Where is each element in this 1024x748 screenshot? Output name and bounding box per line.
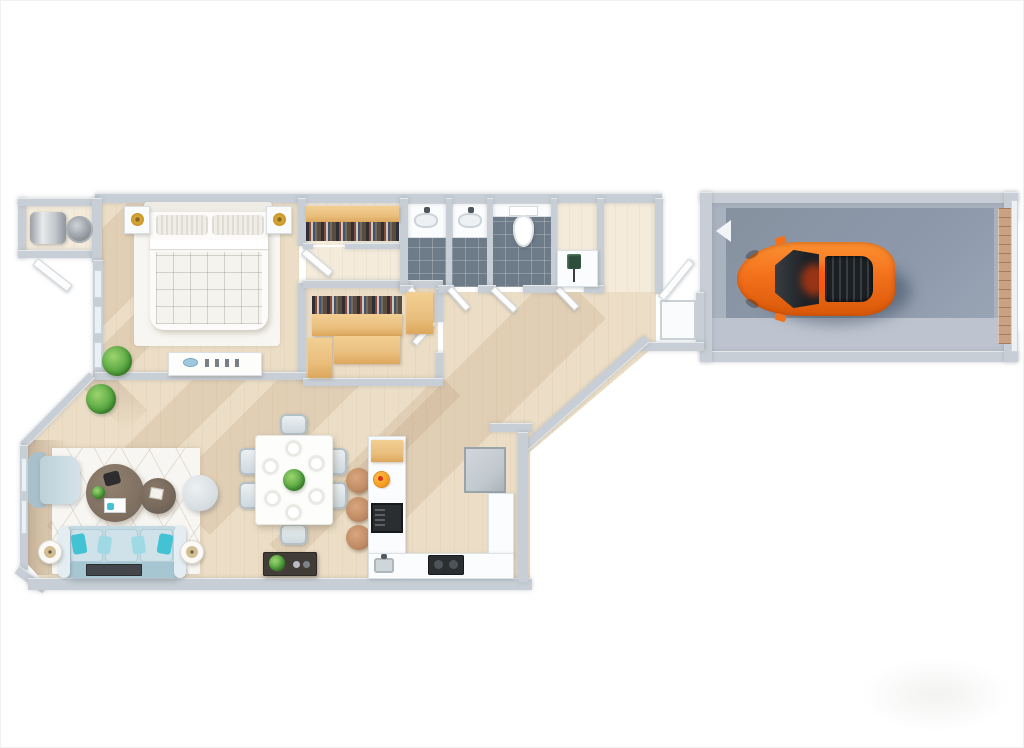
side-table-right xyxy=(180,540,204,564)
bath-divider-2 xyxy=(487,198,493,292)
place-setting xyxy=(265,491,280,506)
island-cutting-board xyxy=(371,440,403,462)
kitchen-faucet-icon xyxy=(381,554,387,559)
place-setting xyxy=(309,489,324,504)
foyer-wall-right xyxy=(655,198,663,294)
laundry-wall-left xyxy=(18,198,26,258)
kitchen-sink xyxy=(374,558,394,573)
dining-chair xyxy=(280,524,307,545)
armchair xyxy=(28,452,82,508)
tray-teal-accent xyxy=(107,503,114,510)
bedroom-window xyxy=(94,306,102,334)
place-setting xyxy=(286,505,301,520)
sideboard-plant xyxy=(269,555,285,571)
bathroom2-tile-floor xyxy=(452,238,488,287)
living-plant xyxy=(86,384,116,414)
entry-door xyxy=(658,259,694,301)
armchair-seat xyxy=(40,456,80,504)
bath-divider-1 xyxy=(446,198,452,292)
bedside-lamp-left xyxy=(131,213,144,226)
bath-wall-right xyxy=(597,198,604,292)
tv-console xyxy=(86,564,142,576)
entry-nook-wall-bottom xyxy=(640,342,704,351)
closet-shelf xyxy=(306,206,399,222)
bedroom-window xyxy=(94,270,102,298)
place-setting xyxy=(286,441,301,456)
bath-wall-left xyxy=(400,198,408,292)
walkin-unit-left xyxy=(308,338,332,378)
pouf xyxy=(182,475,218,511)
walkin-wall-right-upper xyxy=(436,288,443,322)
vanity-sink-2 xyxy=(458,213,482,228)
exterior-wall-bottom xyxy=(28,578,532,590)
small-table-decor xyxy=(149,487,164,500)
throw-pillow-light xyxy=(131,535,146,555)
sports-car xyxy=(735,236,907,324)
bedroom-window xyxy=(94,342,102,368)
kitchen-wall-right xyxy=(518,432,528,582)
entry-closet-box xyxy=(660,300,696,340)
bed-pillow-left xyxy=(156,215,208,235)
cooktop-burner xyxy=(449,560,458,569)
walkin-wall-top xyxy=(303,280,443,288)
dining-chair xyxy=(280,414,307,435)
laundry-wall-top xyxy=(18,198,98,206)
cooktop-burner xyxy=(434,560,443,569)
dresser-decor-items xyxy=(205,359,239,367)
side-table-left xyxy=(38,540,62,564)
car-engine-cover xyxy=(825,256,873,302)
washer xyxy=(66,216,93,243)
walkin-hanging-clothes xyxy=(312,296,402,314)
walkin-wall-bottom xyxy=(303,378,443,386)
closet-wall-bottom-b xyxy=(345,243,403,249)
place-setting xyxy=(309,456,324,471)
garage-entry-arrow-icon xyxy=(716,220,731,242)
bedside-lamp-right xyxy=(273,213,286,226)
powder-plant-decor xyxy=(567,254,581,269)
car-engine-glow xyxy=(801,264,827,296)
living-window xyxy=(21,458,27,492)
walkin-shelf-front xyxy=(312,314,402,336)
living-window xyxy=(21,500,27,534)
garage-wall-top xyxy=(700,192,1018,203)
sideboard-bowl xyxy=(293,561,300,568)
walkin-wall-right-lower xyxy=(436,352,443,380)
place-setting xyxy=(263,459,278,474)
garage-door-trim xyxy=(1011,200,1018,352)
walkin-unit-center xyxy=(334,336,400,364)
bed-pillow-right xyxy=(212,215,264,235)
kitchen-wall-top-right xyxy=(490,423,532,432)
water-heater xyxy=(30,212,66,244)
bed-plaid-blanket xyxy=(156,252,262,324)
garage-wall-bottom xyxy=(700,351,1018,362)
refrigerator xyxy=(464,447,506,493)
bed-sheet-fold xyxy=(150,240,268,249)
oven-detail xyxy=(375,508,385,526)
closet-wall-bottom-a xyxy=(303,243,313,249)
garage-door xyxy=(998,208,1012,344)
faucet-icon xyxy=(468,207,474,213)
walkin-unit-right xyxy=(406,292,433,334)
laundry-door xyxy=(32,258,72,292)
dresser-decor-tray xyxy=(183,358,198,367)
throw-pillow-light xyxy=(97,535,112,555)
kitchen-counter-right xyxy=(488,493,514,555)
bedroom-plant xyxy=(102,346,132,376)
watermark xyxy=(860,658,1012,732)
faucet-icon xyxy=(424,207,430,213)
floor-plan-render xyxy=(0,0,1024,748)
bedroom-wall-right-lower xyxy=(298,282,306,380)
vanity-sink-1 xyxy=(414,213,438,228)
sideboard-bowl xyxy=(303,561,310,568)
laundry-wall-bottom xyxy=(18,250,100,258)
laundry-wall-right xyxy=(92,198,102,262)
table-centerpiece-plant xyxy=(283,469,305,491)
powder-plant-stem xyxy=(573,269,575,282)
bedroom-wall-right-upper xyxy=(298,198,306,246)
closet-hanging-clothes xyxy=(306,222,399,241)
fruit-accent xyxy=(378,476,383,481)
